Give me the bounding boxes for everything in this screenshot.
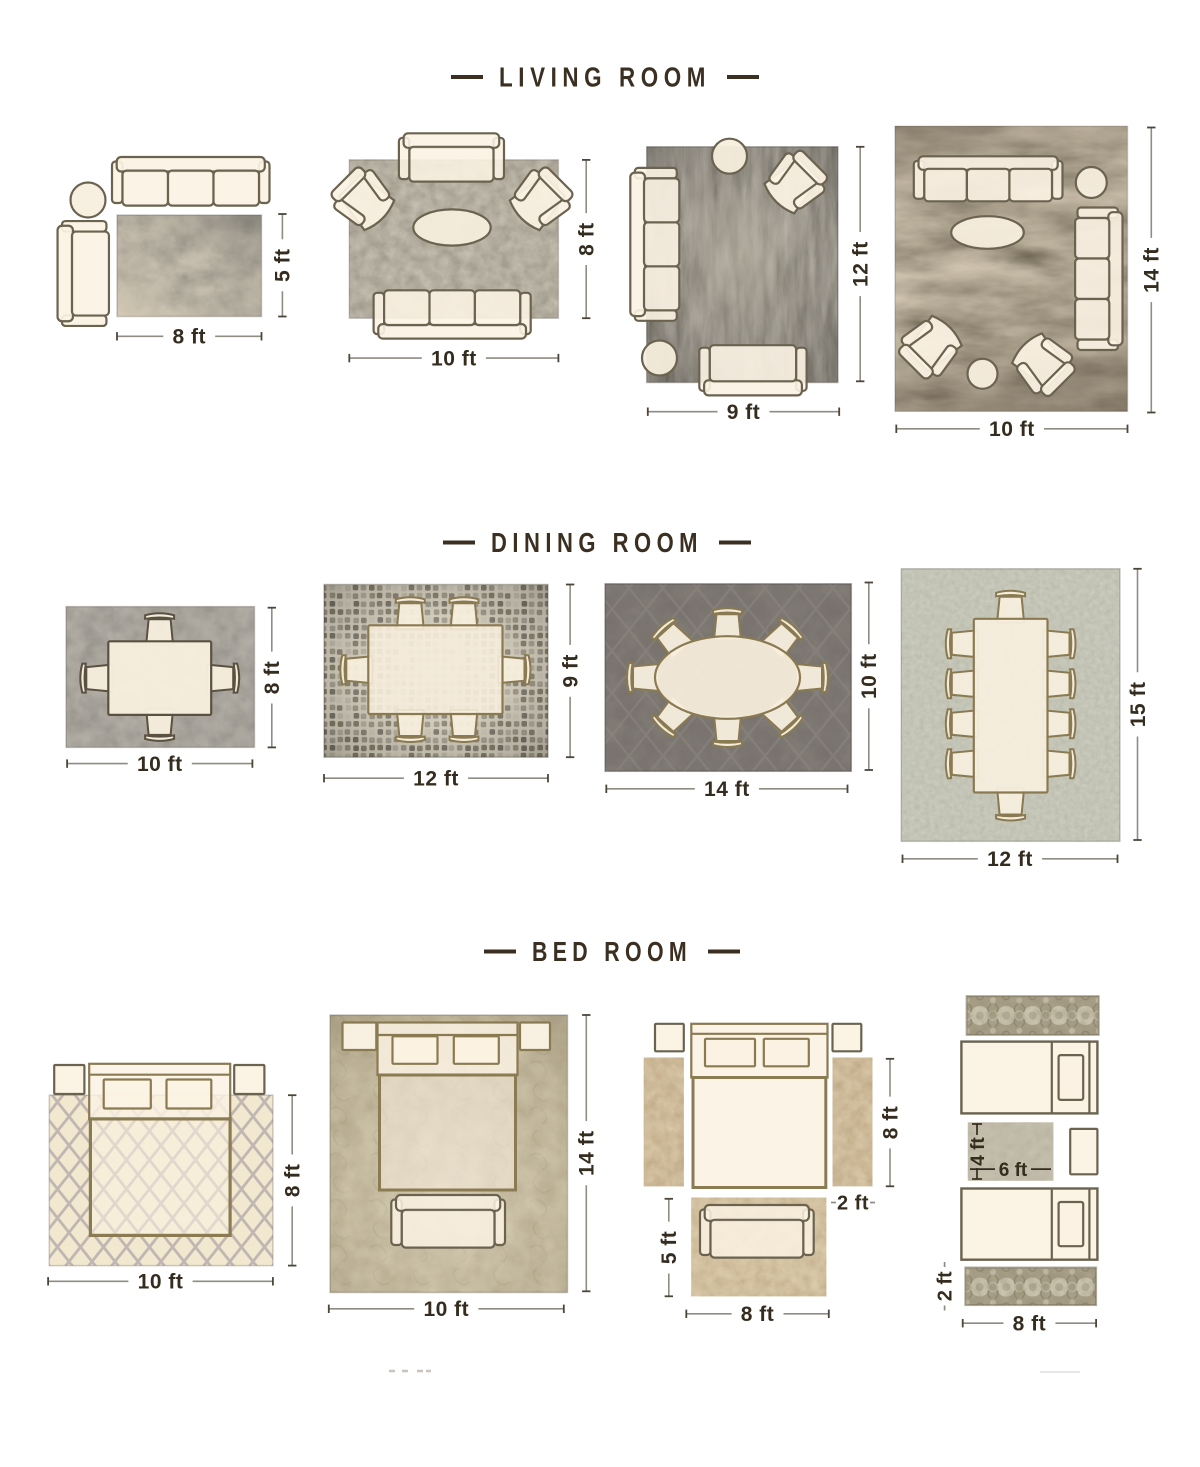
svg-text:9 ft: 9 ft xyxy=(727,401,761,424)
svg-text:14 ft: 14 ft xyxy=(576,1130,599,1176)
svg-text:8 ft: 8 ft xyxy=(282,1164,305,1198)
svg-text:14 ft: 14 ft xyxy=(1141,247,1164,293)
svg-text:8 ft: 8 ft xyxy=(172,326,206,349)
svg-text:4 ft: 4 ft xyxy=(968,1137,989,1166)
svg-text:DINING ROOM: DINING ROOM xyxy=(491,527,703,558)
svg-text:10 ft: 10 ft xyxy=(858,653,881,699)
svg-text:12 ft: 12 ft xyxy=(413,768,459,791)
svg-text:12 ft: 12 ft xyxy=(987,848,1033,871)
svg-text:15 ft: 15 ft xyxy=(1127,682,1150,728)
svg-text:10 ft: 10 ft xyxy=(431,347,477,370)
svg-text:8 ft: 8 ft xyxy=(576,222,599,256)
svg-text:9 ft: 9 ft xyxy=(559,654,582,688)
svg-text:8 ft: 8 ft xyxy=(261,661,284,695)
svg-text:BED ROOM: BED ROOM xyxy=(532,936,692,967)
svg-text:8 ft: 8 ft xyxy=(879,1106,902,1140)
svg-text:8 ft: 8 ft xyxy=(1013,1313,1047,1336)
svg-text:5 ft: 5 ft xyxy=(658,1231,681,1265)
svg-text:14 ft: 14 ft xyxy=(704,778,750,801)
svg-text:8 ft: 8 ft xyxy=(741,1303,775,1326)
svg-text:10 ft: 10 ft xyxy=(138,1271,184,1294)
svg-text:6 ft: 6 ft xyxy=(999,1160,1028,1181)
svg-text:10 ft: 10 ft xyxy=(137,753,183,776)
svg-text:12 ft: 12 ft xyxy=(850,241,873,287)
svg-text:2 ft: 2 ft xyxy=(837,1193,869,1215)
svg-text:10 ft: 10 ft xyxy=(989,418,1035,441)
svg-text:10 ft: 10 ft xyxy=(423,1298,469,1321)
svg-text:5 ft: 5 ft xyxy=(272,248,295,282)
svg-text:LIVING ROOM: LIVING ROOM xyxy=(499,62,711,93)
svg-text:2 ft: 2 ft xyxy=(935,1271,957,1301)
